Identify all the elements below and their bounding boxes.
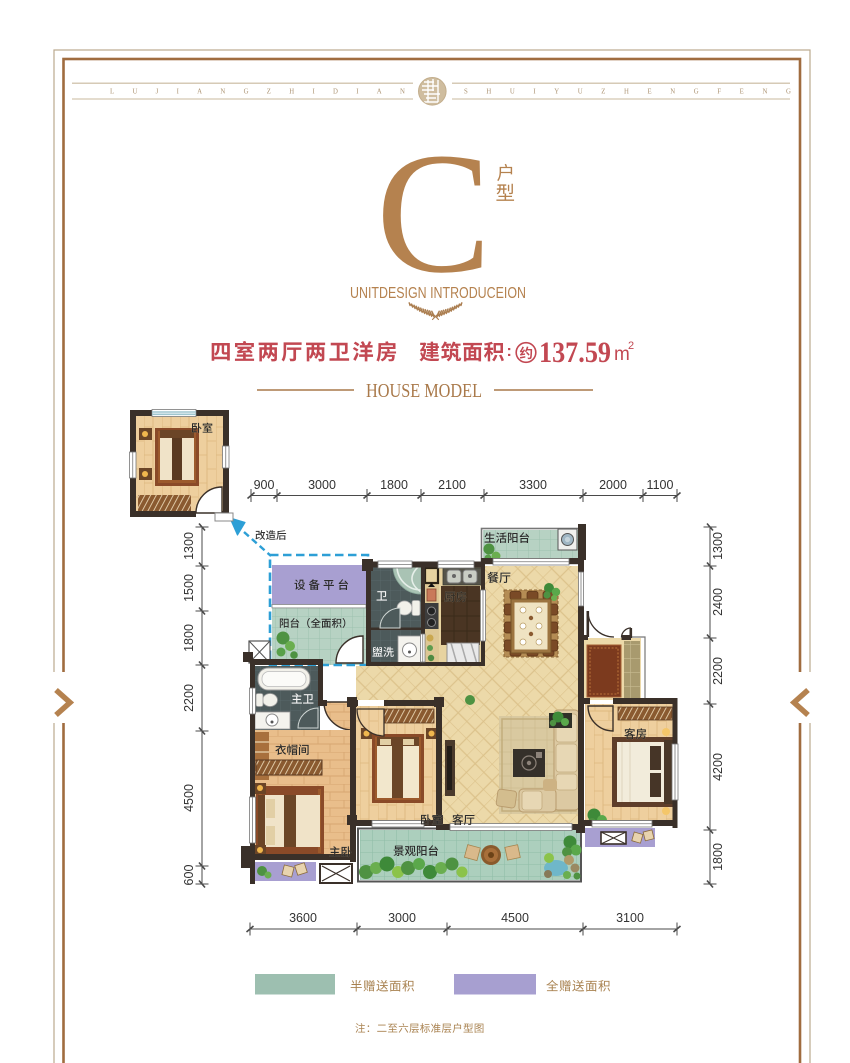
svg-text:4500: 4500 — [501, 911, 529, 925]
svg-text:3000: 3000 — [388, 911, 416, 925]
svg-text:2400: 2400 — [711, 588, 725, 616]
svg-text:1800: 1800 — [380, 478, 408, 492]
svg-text:LUJIANGZHIDIAN: LUJIANGZHIDIAN — [110, 89, 423, 96]
svg-text:2200: 2200 — [182, 684, 196, 712]
svg-text:4500: 4500 — [182, 784, 196, 812]
svg-text:4200: 4200 — [711, 753, 725, 781]
svg-text:2000: 2000 — [599, 478, 627, 492]
svg-text:1100: 1100 — [647, 478, 674, 492]
svg-text:600: 600 — [182, 865, 196, 886]
svg-text:3100: 3100 — [616, 911, 644, 925]
svg-text:3600: 3600 — [289, 911, 317, 925]
svg-text:2100: 2100 — [438, 478, 466, 492]
svg-text:2: 2 — [628, 340, 634, 352]
svg-text:2200: 2200 — [711, 657, 725, 685]
svg-text:137.59: 137.59 — [539, 336, 611, 369]
svg-text:UNITDESIGN INTRODUCEION: UNITDESIGN INTRODUCEION — [350, 285, 526, 302]
svg-text::: : — [507, 343, 512, 360]
svg-text:C: C — [376, 118, 491, 309]
svg-text:900: 900 — [254, 478, 275, 492]
svg-text:1800: 1800 — [711, 843, 725, 871]
svg-text:1800: 1800 — [182, 624, 196, 652]
svg-text:3300: 3300 — [519, 478, 547, 492]
svg-text:1300: 1300 — [711, 532, 725, 560]
svg-text:3000: 3000 — [308, 478, 336, 492]
svg-text:1500: 1500 — [182, 574, 196, 602]
svg-text:HOUSE MODEL: HOUSE MODEL — [366, 381, 482, 402]
svg-text:1300: 1300 — [182, 532, 196, 560]
svg-text:SHUIYUZHENGFENG: SHUIYUZHENGFENG — [464, 89, 809, 96]
